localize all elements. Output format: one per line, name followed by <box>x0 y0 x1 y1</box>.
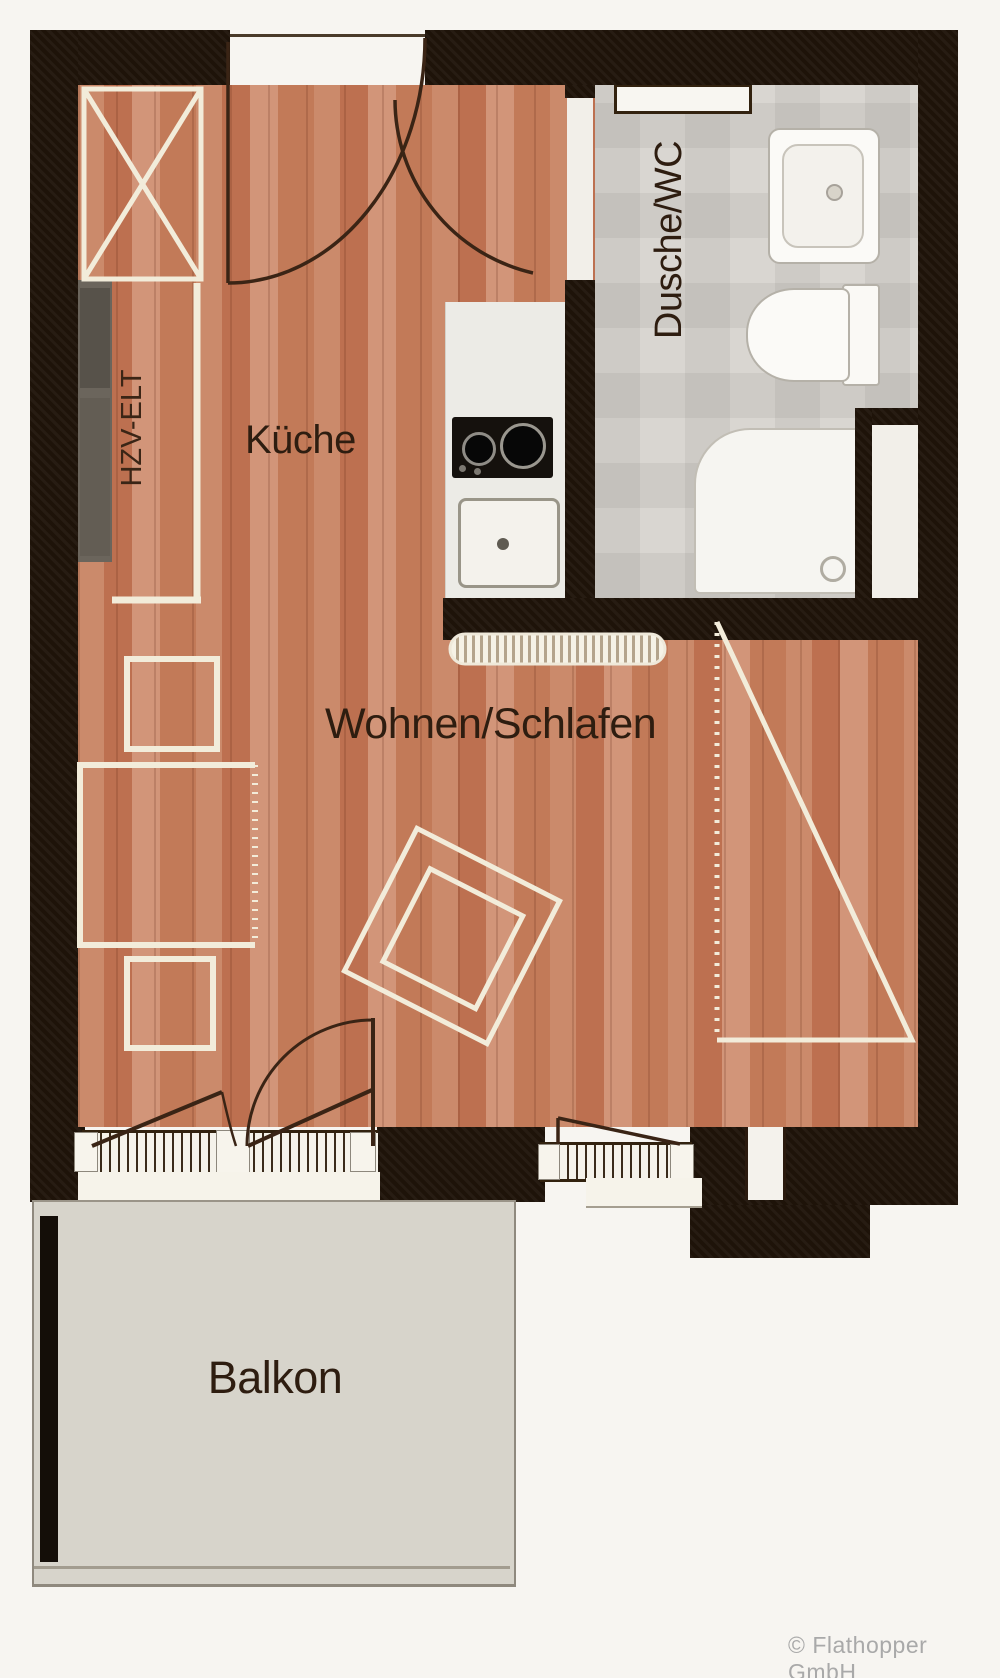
washbasin-bowl <box>782 144 864 248</box>
window-mullion <box>74 1132 98 1172</box>
kitchen-sink <box>458 498 560 588</box>
wall-kitchen-bath-top <box>565 85 595 98</box>
cooktop-burner-icon <box>462 432 496 466</box>
cooktop-knob-icon <box>474 468 481 475</box>
wall-kitchen-bath <box>565 280 595 600</box>
wall-bottom-mid <box>377 1127 545 1202</box>
label-kueche: Küche <box>245 418 356 463</box>
label-wohnen-schlafen: Wohnen/Schlafen <box>325 700 656 749</box>
shower-drain-icon <box>820 556 846 582</box>
floor-plan: Küche Dusche/WC Wohnen/Schlafen Balkon H… <box>0 0 1000 1678</box>
entry-threshold-line <box>230 34 425 37</box>
toilet-bowl <box>746 288 850 382</box>
bathroom-door-opening <box>567 98 593 280</box>
window-mullion <box>216 1130 250 1174</box>
wall-bottom-right <box>690 1127 958 1205</box>
window-mullion <box>538 1144 560 1180</box>
wall-left <box>30 30 78 1202</box>
balcony-rail <box>40 1216 58 1562</box>
wall-top-right <box>425 30 955 85</box>
wall-shaft-side <box>855 408 872 598</box>
cooktop-burner-icon <box>500 423 546 469</box>
sink-drain-icon <box>497 538 509 550</box>
wall-bottom-protrusion <box>690 1205 870 1258</box>
label-balkon: Balkon <box>180 1352 370 1404</box>
wall-bath-bottom <box>443 598 958 640</box>
utility-cabinet-segment <box>80 398 110 556</box>
wall-notch <box>745 1127 786 1200</box>
window-mullion <box>670 1144 694 1180</box>
label-hzv-elt: HZV-ELT <box>116 328 156 528</box>
window-mullion <box>350 1132 376 1172</box>
balcony-edge-line <box>34 1566 510 1569</box>
washbasin-drain-icon <box>826 184 843 201</box>
cooktop-knob-icon <box>459 465 466 472</box>
watermark-text: © Flathopper GmbH <box>788 1632 1000 1678</box>
shaft-void <box>872 425 918 598</box>
utility-cabinet-segment <box>80 288 110 388</box>
label-dusche-wc: Dusche/WC <box>648 110 696 370</box>
window-sill <box>586 1178 702 1208</box>
